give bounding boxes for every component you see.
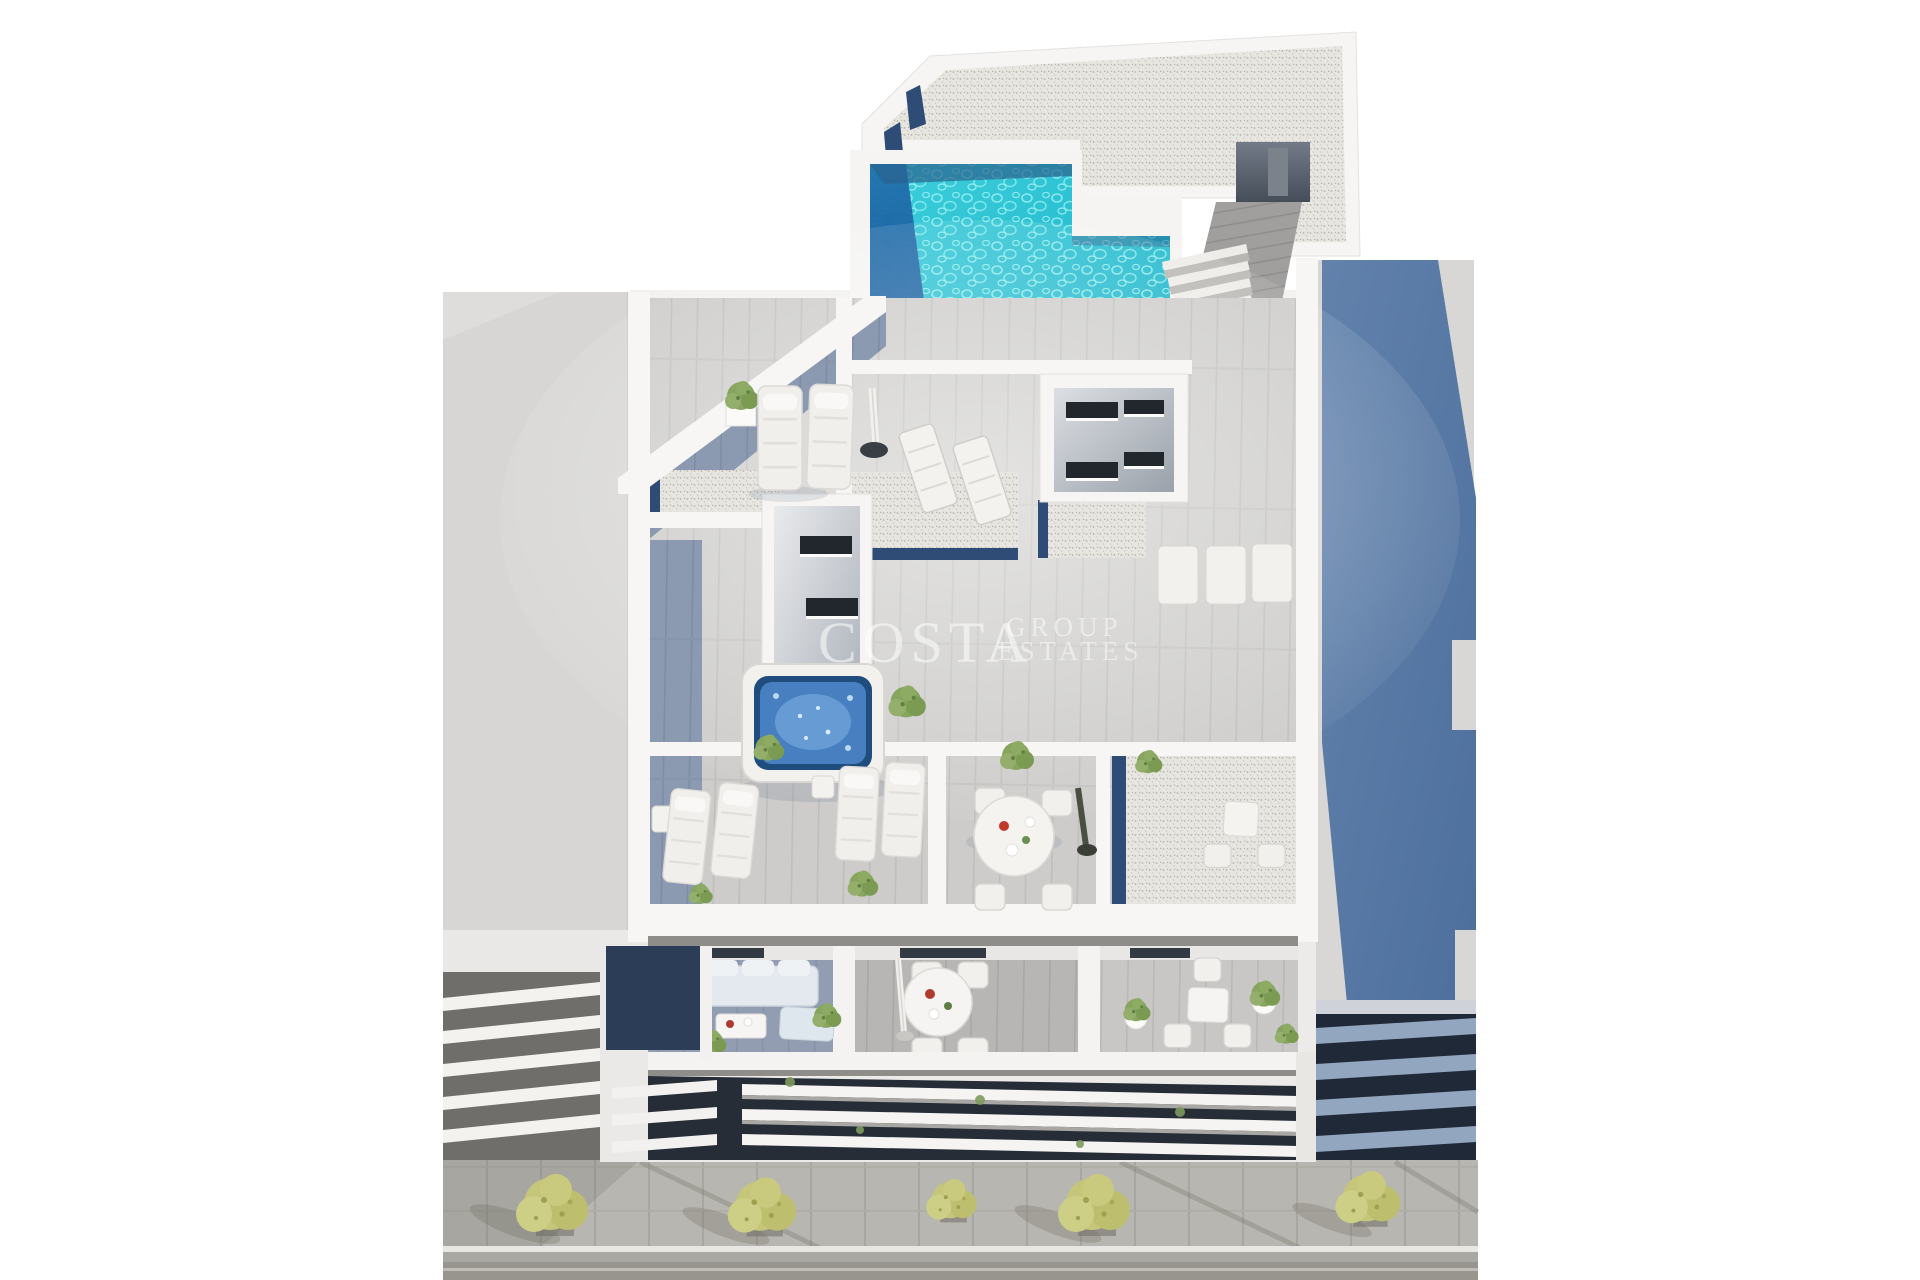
side-table — [812, 776, 834, 798]
coffee-table — [716, 1014, 766, 1038]
street — [443, 1160, 1478, 1280]
curb — [443, 1246, 1478, 1252]
sun-lounger — [881, 762, 925, 858]
sun-lounger — [835, 766, 879, 862]
road-line — [443, 1268, 1478, 1271]
sun-lounger — [758, 386, 802, 490]
right-neighbor-louvers — [1316, 1000, 1476, 1162]
sunbed-row — [1158, 544, 1292, 604]
render-canvas: COSTA GROUP ESTATES — [0, 0, 1920, 1280]
gutter — [443, 1252, 1478, 1262]
balcony-door — [1130, 948, 1190, 958]
balcony-divider — [833, 946, 855, 1058]
balcony-front-slab — [648, 1052, 1298, 1070]
balcony-door — [900, 948, 986, 958]
left-louver-building — [443, 930, 600, 1162]
watermark-tertiary: ESTATES — [998, 636, 1143, 666]
side-table — [1187, 987, 1228, 1022]
skylight-box — [1040, 374, 1188, 502]
corner-glazing — [606, 946, 700, 1050]
watermark: COSTA GROUP ESTATES — [818, 610, 1143, 675]
balcony-divider — [1078, 946, 1100, 1058]
balcony-level — [648, 946, 1299, 1076]
sun-lounger — [806, 384, 854, 489]
architectural-render: COSTA GROUP ESTATES — [0, 0, 1920, 1280]
